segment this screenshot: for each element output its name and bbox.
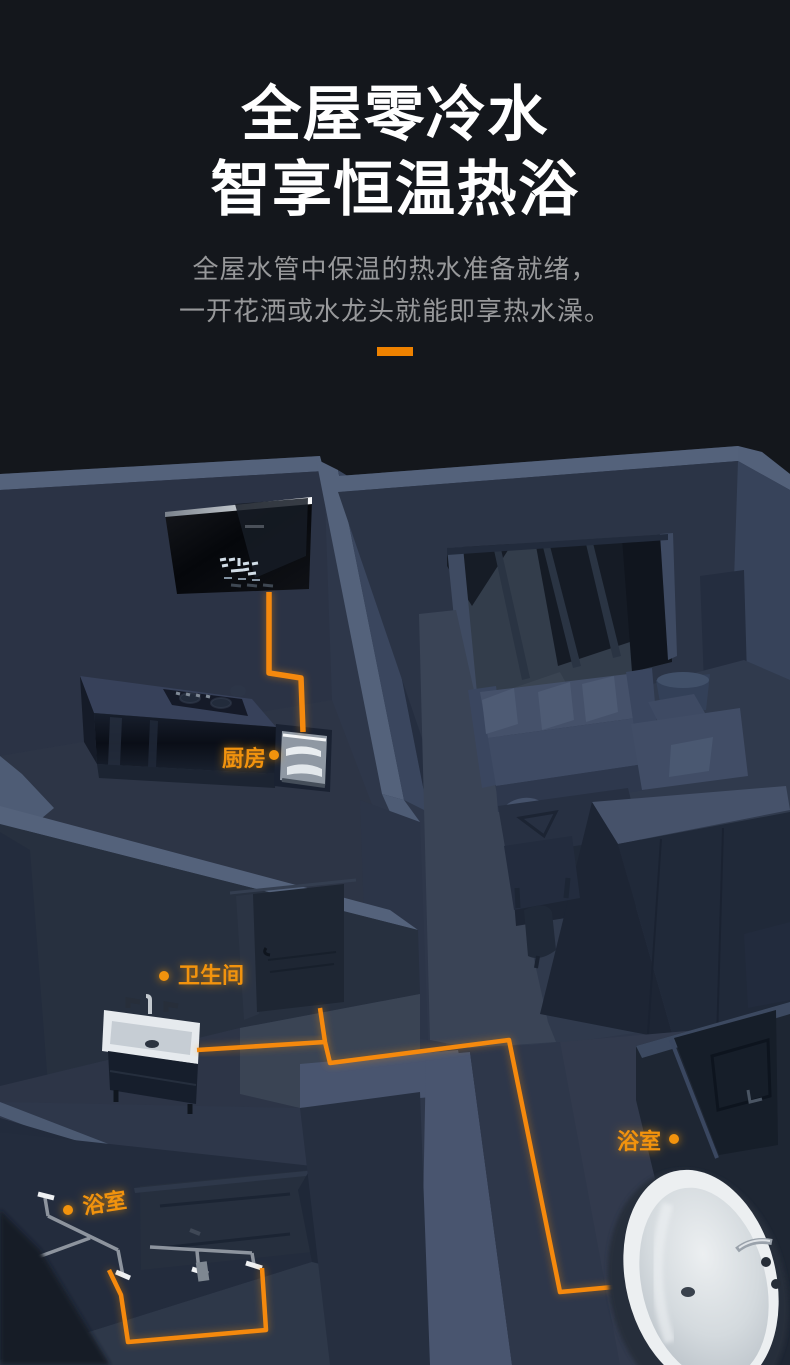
svg-text:卫生间: 卫生间: [178, 963, 244, 988]
svg-text:浴室: 浴室: [617, 1129, 661, 1154]
svg-text:厨房: 厨房: [222, 746, 266, 771]
